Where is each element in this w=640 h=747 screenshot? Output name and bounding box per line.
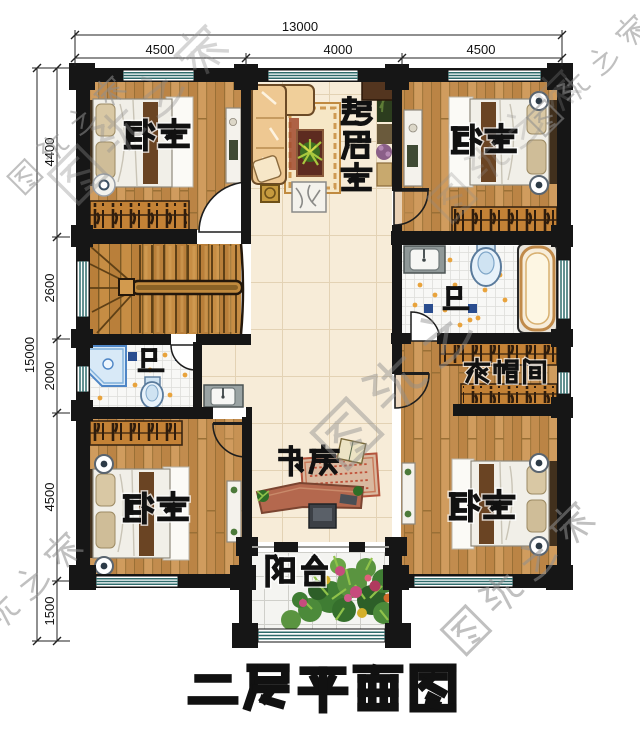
svg-text:4500: 4500 <box>146 42 175 57</box>
svg-text:2600: 2600 <box>42 274 57 303</box>
svg-text:1500: 1500 <box>42 597 57 626</box>
svg-text:15000: 15000 <box>22 337 37 373</box>
svg-text:2000: 2000 <box>42 362 57 391</box>
svg-text:4500: 4500 <box>42 483 57 512</box>
svg-text:4500: 4500 <box>467 42 496 57</box>
svg-text:13000: 13000 <box>282 19 318 34</box>
svg-text:4000: 4000 <box>324 42 353 57</box>
